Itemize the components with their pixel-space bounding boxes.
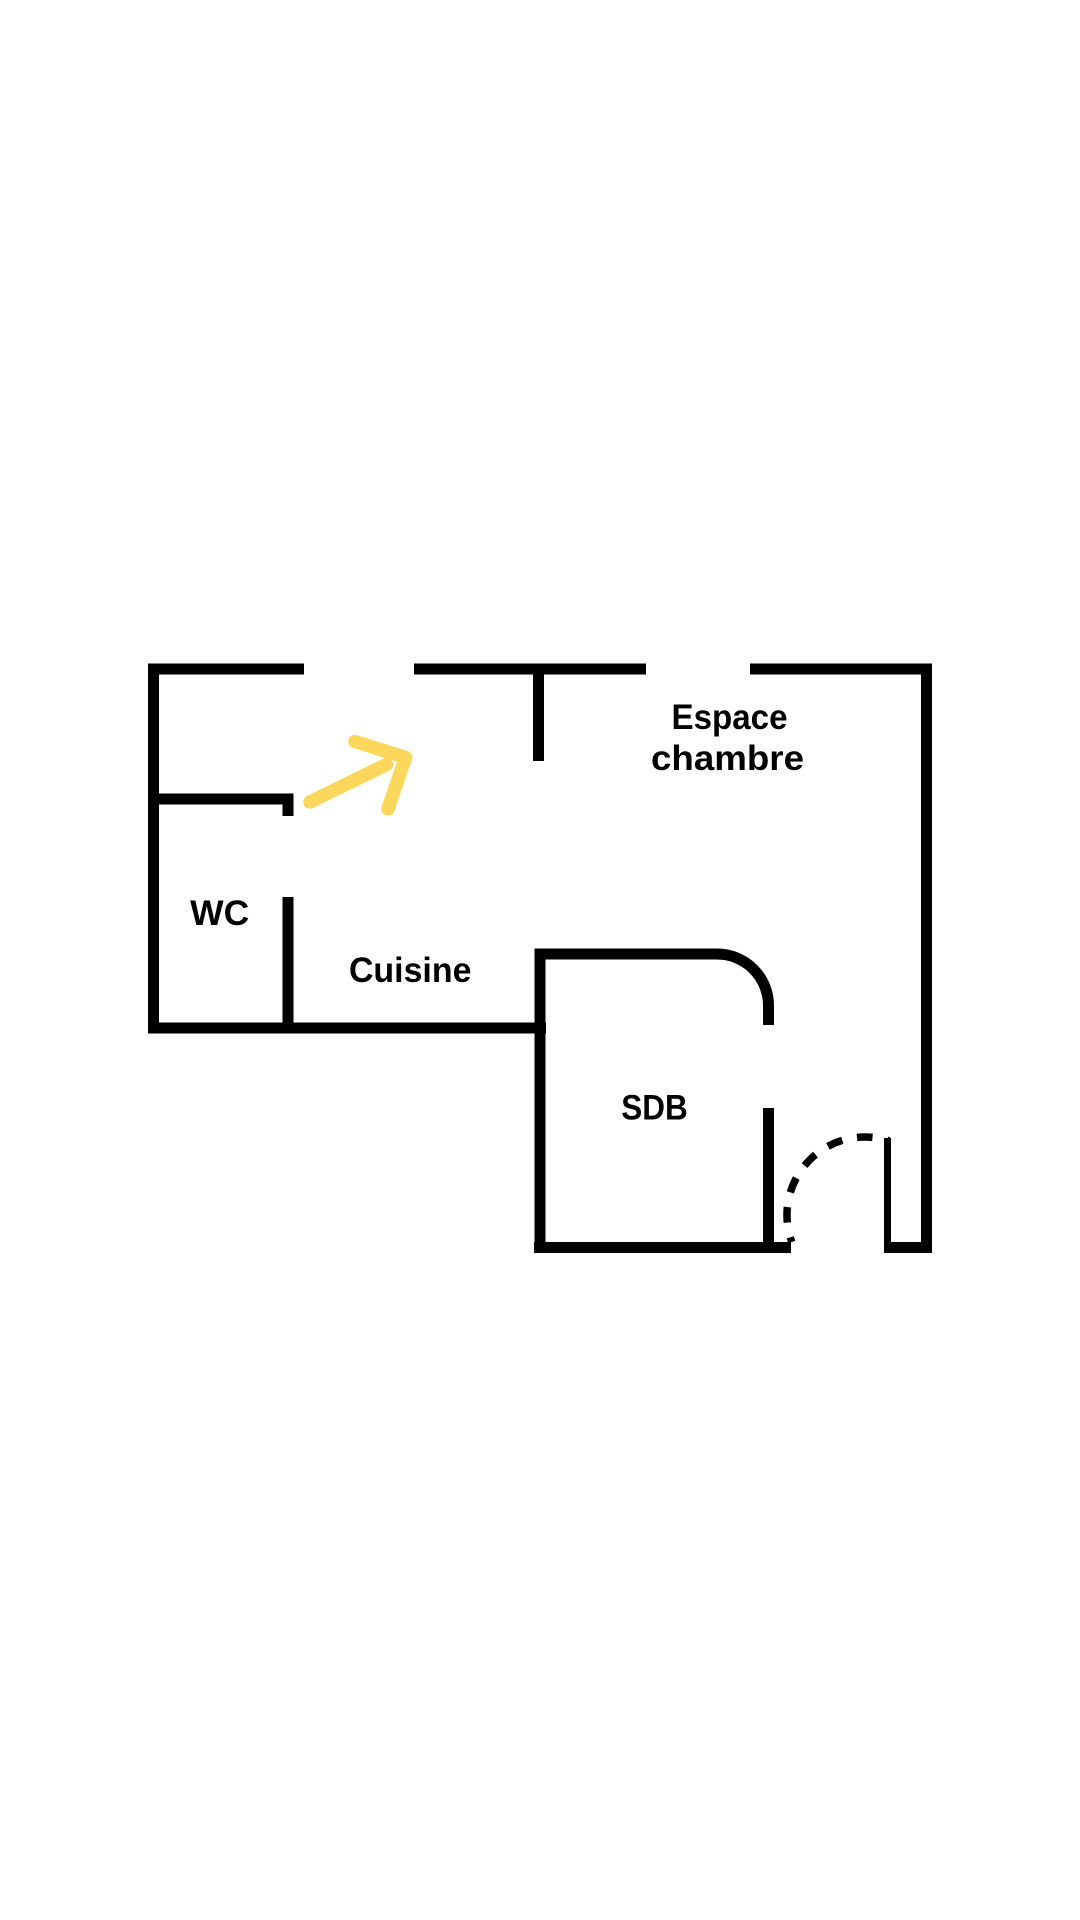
- svg-text:chambre: chambre: [651, 739, 804, 778]
- svg-text:Cuisine: Cuisine: [349, 951, 472, 990]
- svg-text:WC: WC: [190, 894, 249, 933]
- svg-text:Espace: Espace: [672, 698, 788, 737]
- svg-text:SDB: SDB: [621, 1089, 688, 1128]
